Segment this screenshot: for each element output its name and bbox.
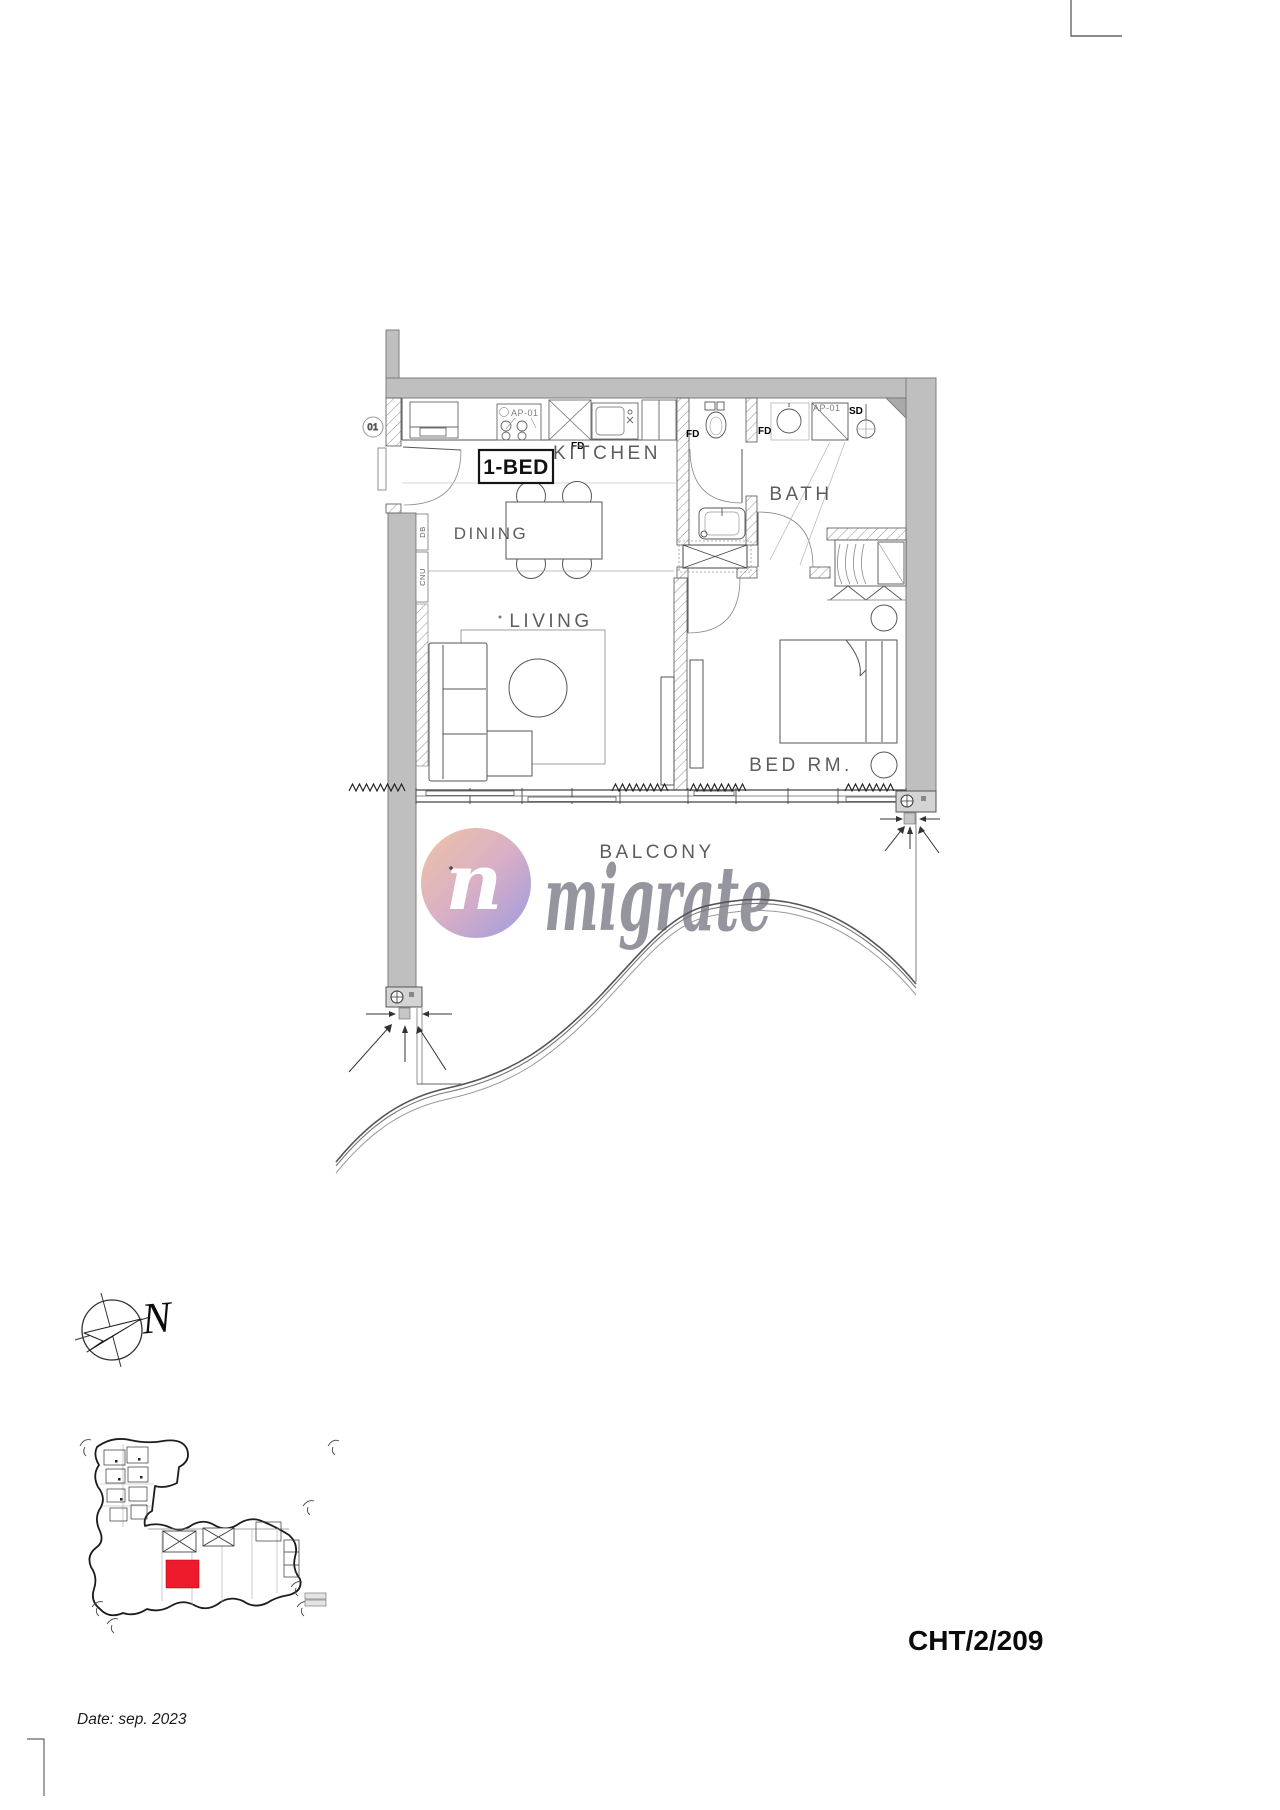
floor-drain-bath: FD (758, 426, 771, 437)
panel-label-db: DB (418, 526, 427, 537)
bath-label: BATH (769, 484, 832, 505)
title-block-corner (27, 1739, 44, 1796)
floor-drain-wc: FD (686, 429, 699, 440)
entry-jamb-walls (386, 398, 401, 513)
corner-mark-top-right (1071, 0, 1122, 36)
wall-top-left-stub (386, 330, 399, 380)
detail-marker-left (349, 987, 452, 1072)
closet (827, 540, 906, 600)
key-plan-legend (305, 1593, 326, 1606)
bath-appliance-tag: AP-01 (813, 403, 841, 413)
nightstand (871, 752, 897, 778)
bedroom-set (690, 605, 897, 778)
wc-fixtures (699, 402, 745, 539)
nightstand (871, 605, 897, 631)
plan-canvas: n migrate DB CNU (0, 0, 1280, 1810)
bath-door (758, 512, 813, 567)
coffee-table (487, 731, 532, 776)
shower-shelf (886, 398, 906, 418)
wall-right (906, 378, 936, 804)
floor-plan-sheet: n migrate DB CNU (0, 0, 1280, 1810)
bedroom-door (688, 578, 740, 633)
north-label: N (139, 1292, 176, 1344)
svg-text:1-BED: 1-BED (483, 456, 549, 479)
sofa (429, 643, 487, 781)
fridge-space (410, 402, 458, 438)
entry-door-tag: 01 (367, 422, 378, 432)
unit-type-badge: 1-BED (479, 450, 553, 483)
balcony-label: BALCONY (599, 842, 714, 863)
dining-label: DINING (454, 524, 529, 543)
unit-reference-code: CHT/2/209 (908, 1625, 1043, 1656)
living-label: LIVING (509, 611, 592, 632)
tv-unit (661, 677, 674, 785)
duct-shaft (679, 541, 751, 572)
bed (780, 640, 897, 743)
dresser (690, 660, 703, 768)
date-label: Date: sep. 2023 (77, 1711, 187, 1728)
closet-bifold-doors (830, 586, 902, 600)
north-arrow: N (75, 1292, 176, 1367)
key-plan-unit-highlight (166, 1560, 199, 1588)
wall-left (388, 513, 416, 990)
panel-label-cnu: CNU (418, 568, 427, 586)
watermark: n migrate (421, 828, 772, 952)
wc-door (690, 449, 742, 503)
key-plan (80, 1439, 339, 1633)
svg-text:AP-01: AP-01 (511, 408, 539, 418)
kitchen-label: KITCHEN (553, 443, 661, 464)
service-panel-strip: DB CNU (416, 514, 428, 766)
dishwasher (549, 400, 591, 440)
bedroom-label: BED RM. (749, 755, 853, 776)
wall-top (386, 378, 936, 398)
watermark-logo-dot (449, 866, 453, 870)
round-table (509, 659, 567, 717)
wc-toilet (706, 412, 726, 438)
shower-drain-tag: SD (849, 406, 863, 417)
key-plan-outline (89, 1439, 300, 1615)
bath-basin (777, 409, 801, 433)
watermark-logo-letter: n (446, 837, 503, 928)
kitchen-sink (592, 403, 638, 439)
living-set (429, 616, 674, 786)
